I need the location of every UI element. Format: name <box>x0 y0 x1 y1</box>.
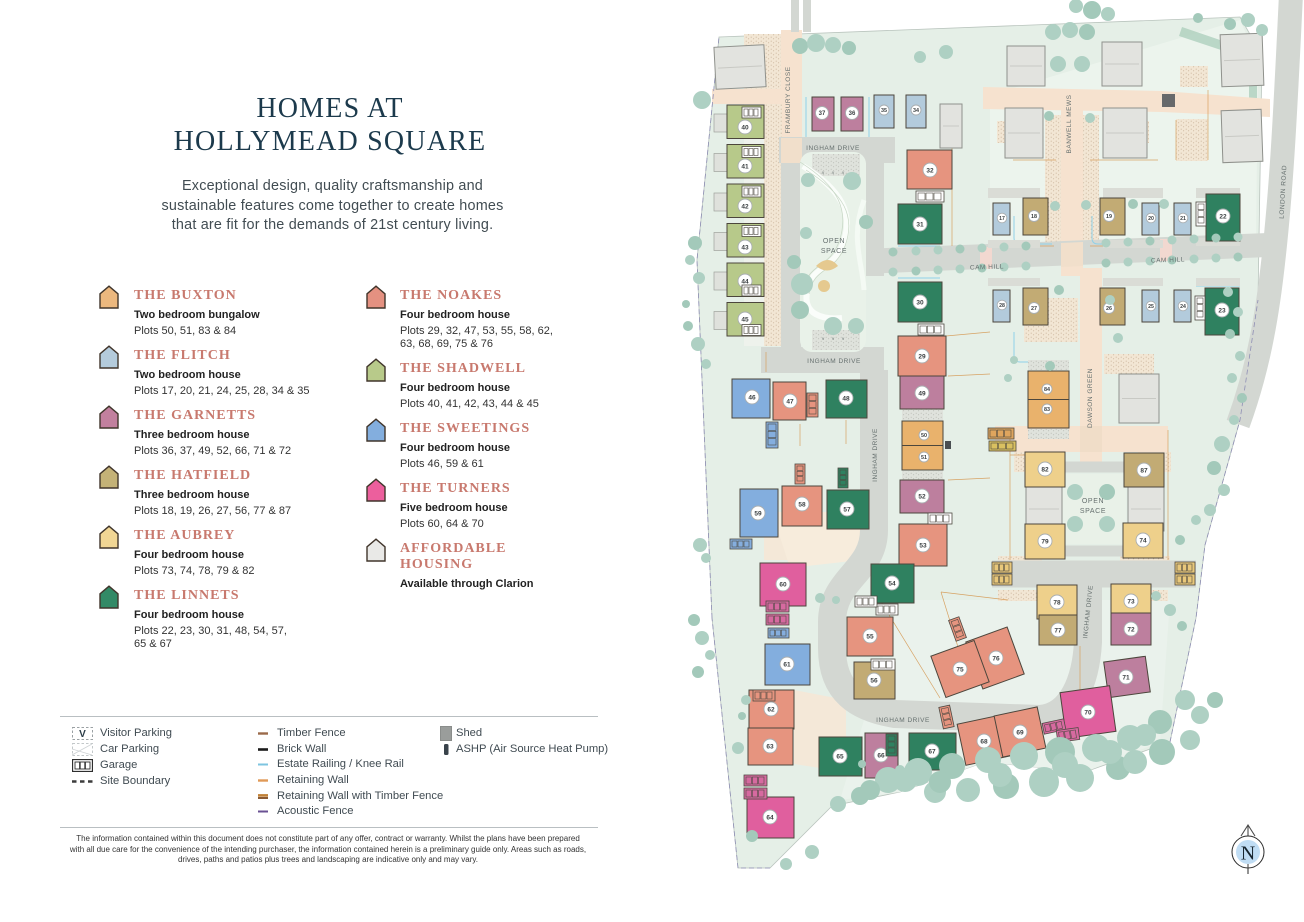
svg-text:28: 28 <box>999 303 1005 309</box>
svg-text:INGHAM DRIVE: INGHAM DRIVE <box>807 358 861 365</box>
svg-text:56: 56 <box>870 677 878 684</box>
svg-text:46: 46 <box>748 394 756 401</box>
svg-text:67: 67 <box>928 748 936 755</box>
svg-text:OPEN: OPEN <box>823 238 845 245</box>
svg-text:72: 72 <box>1127 626 1135 633</box>
svg-text:59: 59 <box>754 510 762 517</box>
svg-text:55: 55 <box>866 633 874 640</box>
svg-text:78: 78 <box>1053 599 1061 606</box>
svg-text:66: 66 <box>877 752 885 759</box>
svg-text:74: 74 <box>1139 537 1147 544</box>
svg-text:N: N <box>1241 843 1255 865</box>
svg-text:64: 64 <box>766 814 774 821</box>
svg-text:42: 42 <box>741 203 749 210</box>
svg-text:79: 79 <box>1041 538 1049 545</box>
svg-text:47: 47 <box>786 398 794 405</box>
svg-text:20: 20 <box>1148 216 1154 222</box>
svg-text:73: 73 <box>1127 598 1135 605</box>
svg-text:48: 48 <box>842 395 850 402</box>
svg-text:29: 29 <box>918 353 926 360</box>
svg-text:60: 60 <box>779 581 787 588</box>
svg-text:OPEN: OPEN <box>1082 498 1104 505</box>
svg-text:50: 50 <box>921 433 927 439</box>
svg-text:26: 26 <box>1106 306 1112 312</box>
svg-text:45: 45 <box>741 316 749 323</box>
svg-text:21: 21 <box>1180 216 1186 222</box>
svg-text:SPACE: SPACE <box>1080 508 1106 515</box>
svg-text:31: 31 <box>916 221 924 228</box>
svg-text:62: 62 <box>767 706 775 713</box>
svg-text:17: 17 <box>999 216 1005 222</box>
svg-text:27: 27 <box>1031 306 1037 312</box>
svg-text:58: 58 <box>798 501 806 508</box>
svg-text:71: 71 <box>1122 674 1130 681</box>
svg-text:82: 82 <box>1041 466 1049 473</box>
svg-text:41: 41 <box>741 163 749 170</box>
svg-text:INGHAM DRIVE: INGHAM DRIVE <box>872 428 879 482</box>
svg-text:BANWELL MEWS: BANWELL MEWS <box>1066 94 1073 153</box>
svg-text:19: 19 <box>1106 214 1112 220</box>
svg-text:57: 57 <box>843 506 851 513</box>
svg-text:84: 84 <box>1044 387 1050 393</box>
svg-text:CAM HILL: CAM HILL <box>1151 256 1185 264</box>
svg-text:FRAMBURY CLOSE: FRAMBURY CLOSE <box>785 66 792 133</box>
svg-text:68: 68 <box>980 738 988 745</box>
svg-text:25: 25 <box>1148 304 1154 310</box>
svg-text:52: 52 <box>918 493 926 500</box>
svg-text:61: 61 <box>783 661 791 668</box>
svg-text:44: 44 <box>741 278 749 285</box>
svg-text:18: 18 <box>1031 214 1037 220</box>
svg-text:51: 51 <box>921 455 927 461</box>
svg-text:87: 87 <box>1140 467 1148 474</box>
svg-text:40: 40 <box>741 124 749 131</box>
svg-text:83: 83 <box>1044 407 1050 413</box>
svg-text:75: 75 <box>956 666 964 673</box>
svg-text:INGHAM DRIVE: INGHAM DRIVE <box>876 717 930 724</box>
svg-text:23: 23 <box>1218 307 1226 314</box>
svg-text:77: 77 <box>1054 627 1062 634</box>
svg-text:35: 35 <box>881 108 887 114</box>
svg-text:53: 53 <box>919 542 927 549</box>
svg-text:54: 54 <box>888 580 896 587</box>
svg-text:37: 37 <box>819 111 826 117</box>
svg-text:76: 76 <box>992 655 1000 662</box>
svg-text:69: 69 <box>1016 729 1024 736</box>
svg-text:CAM HILL: CAM HILL <box>970 263 1004 271</box>
svg-text:22: 22 <box>1219 213 1227 220</box>
svg-text:34: 34 <box>913 108 919 114</box>
svg-text:DAWSON GREEN: DAWSON GREEN <box>1087 368 1094 428</box>
svg-text:43: 43 <box>741 244 749 251</box>
svg-text:INGHAM DRIVE: INGHAM DRIVE <box>806 145 860 152</box>
svg-text:65: 65 <box>836 753 844 760</box>
svg-text:30: 30 <box>916 299 924 306</box>
svg-text:70: 70 <box>1084 709 1092 716</box>
svg-text:63: 63 <box>766 743 774 750</box>
svg-text:24: 24 <box>1180 304 1186 310</box>
svg-text:36: 36 <box>849 111 856 117</box>
svg-text:SPACE: SPACE <box>821 248 847 255</box>
svg-text:49: 49 <box>918 390 926 397</box>
svg-text:32: 32 <box>926 167 934 174</box>
